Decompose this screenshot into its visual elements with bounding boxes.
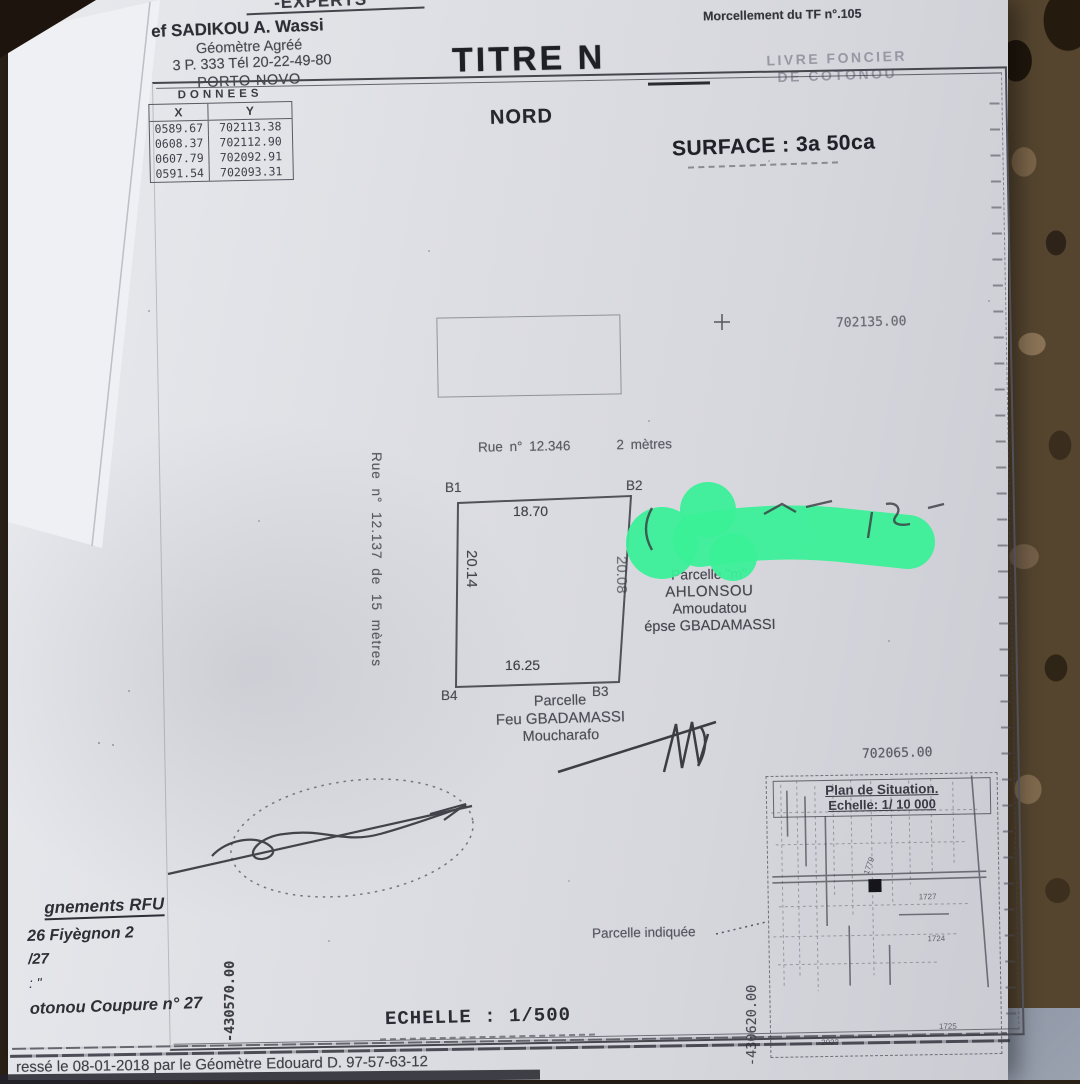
parcel-dim-left: 20.14: [463, 550, 480, 588]
cell-x: 0591.54: [151, 166, 210, 182]
coordinates-table: DONNEES X Y 0589.67 702113.38 0608.37 70…: [148, 87, 294, 183]
cell-y: 702093.31: [210, 164, 293, 181]
table-row: 0591.54 702093.31: [151, 164, 293, 182]
indicated-parcel-label: Parcelle indiquée: [592, 924, 696, 941]
minimap-number: 1779: [862, 856, 876, 876]
street-left-label: Rue n° 12.137 de 15 mètres: [369, 452, 384, 667]
cell-y: 702113.38: [209, 119, 292, 136]
situation-scale: Echelle: 1/ 10 000: [774, 795, 990, 814]
parcel-dim-bottom: 16.25: [505, 657, 540, 673]
corner-label-b4: B4: [441, 688, 458, 703]
minimap-number: 1725: [939, 1022, 957, 1031]
situation-plan-box: Plan de Situation. Echelle: 1/ 10 000 17…: [766, 772, 1003, 1058]
corner-label-b1: B1: [445, 480, 462, 495]
rfu-line3: /27: [28, 945, 201, 968]
grid-label-y-mid: 702065.00: [862, 745, 933, 762]
cell-x: 0608.37: [150, 136, 209, 152]
col-x: X: [149, 104, 208, 121]
owner-firstname: Amoudatou: [612, 599, 807, 618]
owner-surname: AHLONSOU: [612, 581, 807, 601]
cell-y: 702112.90: [209, 134, 292, 151]
main-scale-label: ECHELLE : 1/500: [385, 1004, 571, 1030]
cell-x: 0607.79: [150, 151, 209, 167]
grid-label-x-right: -430620.00: [744, 985, 760, 1066]
minimap-number: 1724: [927, 934, 945, 943]
morcellement-note: Morcellement du TF n°.105: [703, 7, 862, 24]
indicated-parcel-marker: [868, 879, 881, 892]
grid-label-x-left: -430570.00: [222, 961, 238, 1042]
coordinates-title: DONNEES: [148, 87, 292, 102]
rfu-title: gnements RFU: [44, 894, 165, 920]
parcel-dim-top: 18.70: [513, 503, 548, 519]
owner-married-name: épse GBADAMASSI: [612, 616, 807, 635]
corner-label-b2: B2: [626, 478, 643, 493]
rfu-line2: 26 Fiyègnon 2: [27, 922, 200, 946]
adjacent-block-outline: [436, 314, 621, 397]
parcel-owner-block: Parcelle "m" AHLONSOU Amoudatou épse GBA…: [611, 563, 807, 636]
street-top-name: Rue n° 12.346: [478, 438, 571, 455]
rfu-line4: : ": [29, 969, 202, 991]
street-top-width: 2 mètres: [616, 436, 672, 452]
rfu-block: gnements RFU 26 Fiyègnon 2 /27 : " otono…: [26, 893, 203, 1019]
col-y: Y: [208, 102, 291, 120]
north-label: NORD: [490, 105, 553, 130]
south-parcel-block: Parcelle Feu GBADAMASSI Moucharafo: [467, 690, 653, 748]
cell-x: 0589.67: [150, 121, 209, 137]
owner-parcel-id: Parcelle "m": [611, 564, 806, 583]
grid-label-y-top: 702135.00: [836, 314, 907, 331]
cell-y: 702092.91: [209, 149, 292, 166]
minimap-number: 1727: [919, 892, 937, 901]
situation-title-box: Plan de Situation. Echelle: 1/ 10 000: [773, 777, 992, 818]
